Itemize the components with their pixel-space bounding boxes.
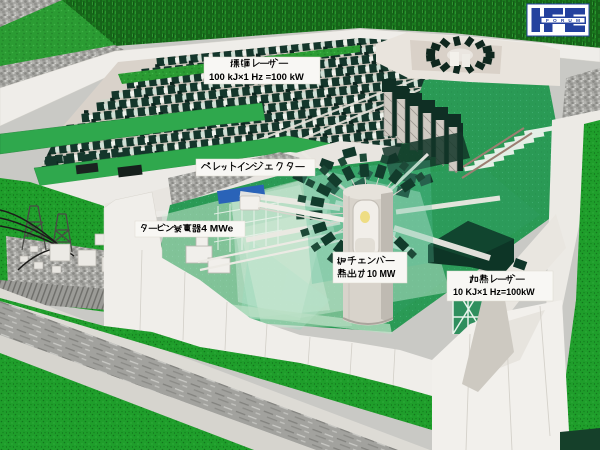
svg-text:10 KJ×1 Hz=100kW: 10 KJ×1 Hz=100kW [453,287,535,297]
svg-text:10 MW: 10 MW [367,269,396,280]
svg-text:100 kJ×1 Hz =100 kW: 100 kJ×1 Hz =100 kW [209,72,305,82]
svg-text:4 MWe: 4 MWe [201,223,233,234]
